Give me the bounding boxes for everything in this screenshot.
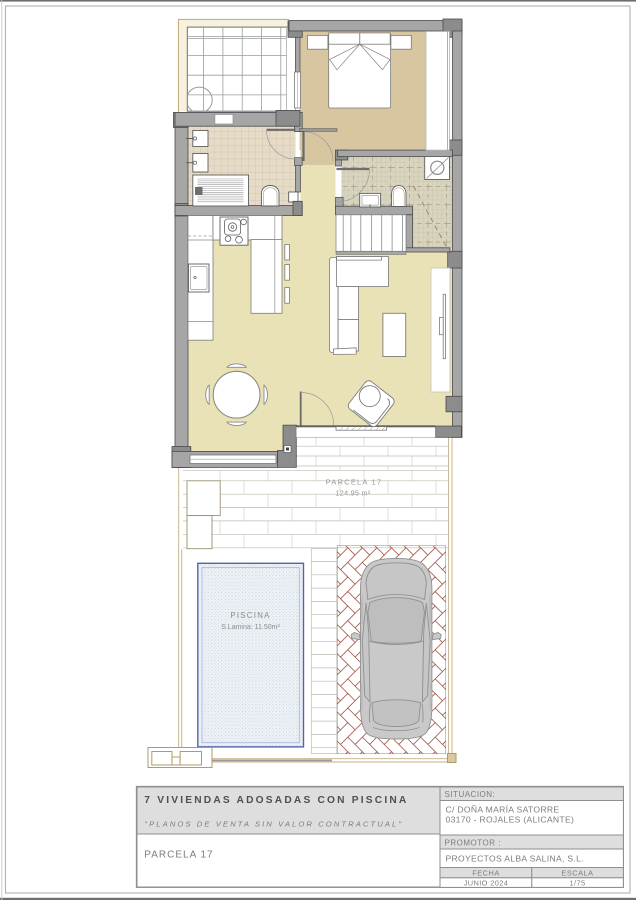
svg-text:S.Lamina: 11.50m²: S.Lamina: 11.50m²: [221, 624, 280, 631]
svg-text:ESCALA: ESCALA: [561, 869, 593, 878]
svg-text:PISCINA: PISCINA: [230, 611, 270, 620]
svg-text:1/75: 1/75: [570, 878, 586, 887]
svg-text:PARCELA 17: PARCELA 17: [144, 850, 213, 861]
svg-text:PROMOTOR :: PROMOTOR :: [445, 839, 501, 848]
svg-text:FECHA: FECHA: [472, 869, 500, 878]
svg-text:JUNIO 2024: JUNIO 2024: [464, 878, 509, 887]
svg-text:124.95 m²: 124.95 m²: [335, 489, 370, 498]
svg-text:03170 - ROJALES (ALICANTE): 03170 - ROJALES (ALICANTE): [446, 815, 575, 825]
svg-text:C/ DOÑA MARÍA SATORRE: C/ DOÑA MARÍA SATORRE: [446, 805, 560, 815]
svg-text:7 VIVIENDAS ADOSADAS CON PISCI: 7 VIVIENDAS ADOSADAS CON PISCINA: [144, 795, 408, 806]
svg-text:SITUACION:: SITUACION:: [445, 790, 496, 799]
svg-text:PARCELA 17: PARCELA 17: [326, 478, 382, 487]
svg-text:"PLANOS DE VENTA SIN VALOR CON: "PLANOS DE VENTA SIN VALOR CONTRACTUAL": [144, 820, 403, 829]
svg-text:PROYECTOS ALBA SALINA, S.L.: PROYECTOS ALBA SALINA, S.L.: [446, 854, 584, 864]
